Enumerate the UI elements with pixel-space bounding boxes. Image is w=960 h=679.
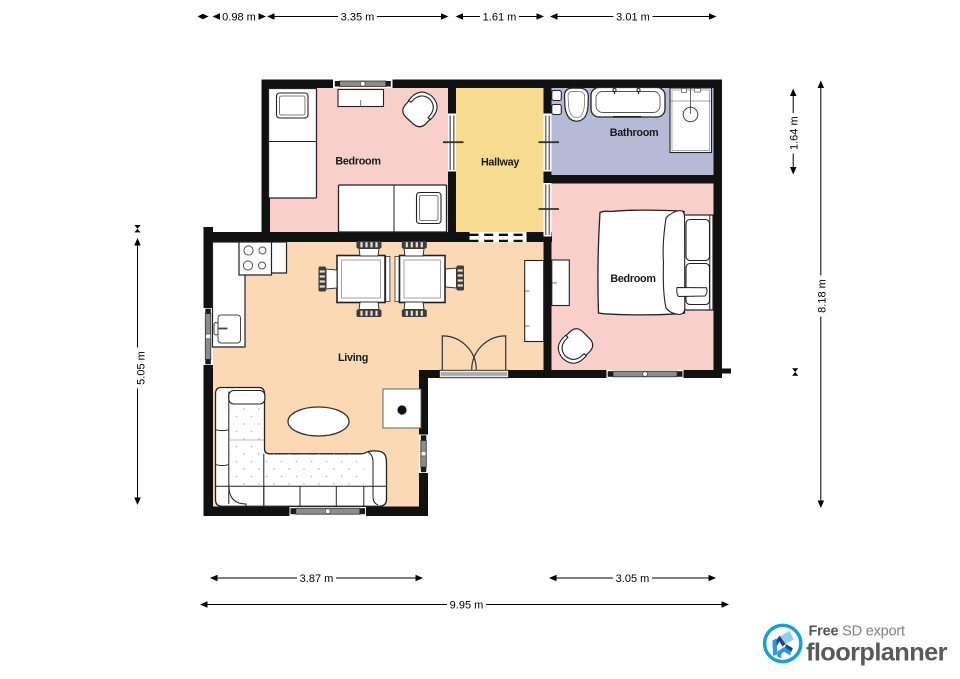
svg-text:Bedroom: Bedroom	[335, 156, 380, 168]
svg-text:9.95 m: 9.95 m	[450, 600, 484, 612]
svg-text:5.05 m: 5.05 m	[136, 351, 148, 385]
svg-text:3.05 m: 3.05 m	[616, 573, 650, 585]
svg-text:floorplanner: floorplanner	[806, 639, 948, 667]
svg-text:1.64 m: 1.64 m	[789, 116, 801, 150]
svg-text:3.01 m: 3.01 m	[616, 12, 650, 24]
svg-text:3.87 m: 3.87 m	[300, 573, 334, 585]
svg-text:Bathroom: Bathroom	[610, 127, 659, 139]
svg-text:1.61 m: 1.61 m	[483, 12, 517, 24]
svg-text:Free SD export: Free SD export	[809, 624, 906, 640]
svg-text:3.35 m: 3.35 m	[341, 12, 375, 24]
svg-text:Hallway: Hallway	[481, 157, 519, 169]
svg-text:Living: Living	[338, 352, 368, 364]
svg-text:Bedroom: Bedroom	[610, 273, 655, 285]
svg-text:0.98 m: 0.98 m	[222, 12, 256, 24]
svg-text:8.18 m: 8.18 m	[817, 279, 829, 313]
